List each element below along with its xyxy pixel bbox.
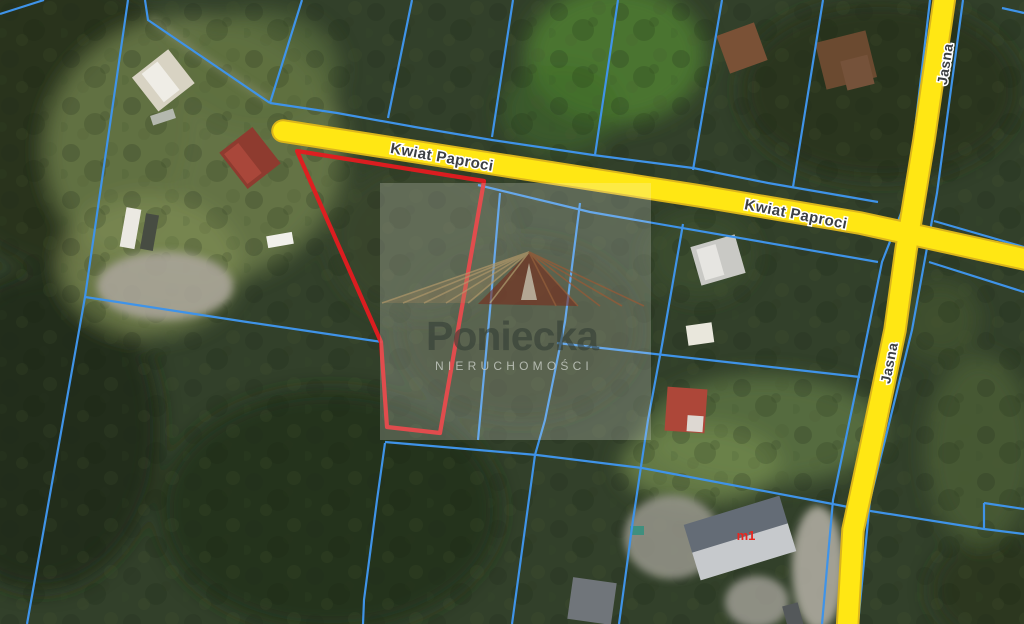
building-red-roof-house [665,387,708,434]
watermark-subtitle: NIERUCHOMOŚCI [435,358,593,373]
building-label-m1: m1 [737,528,756,543]
watermark-brand: Poniecka [426,313,600,359]
watermark: Poniecka NIERUCHOMOŚCI [380,183,651,440]
building-bottom-house [567,577,616,624]
building-shed [686,322,715,345]
map-canvas[interactable]: Kwiat Paproci Kwiat Paproci Jasna Jasna … [0,0,1024,624]
watermark-panel [380,183,651,440]
